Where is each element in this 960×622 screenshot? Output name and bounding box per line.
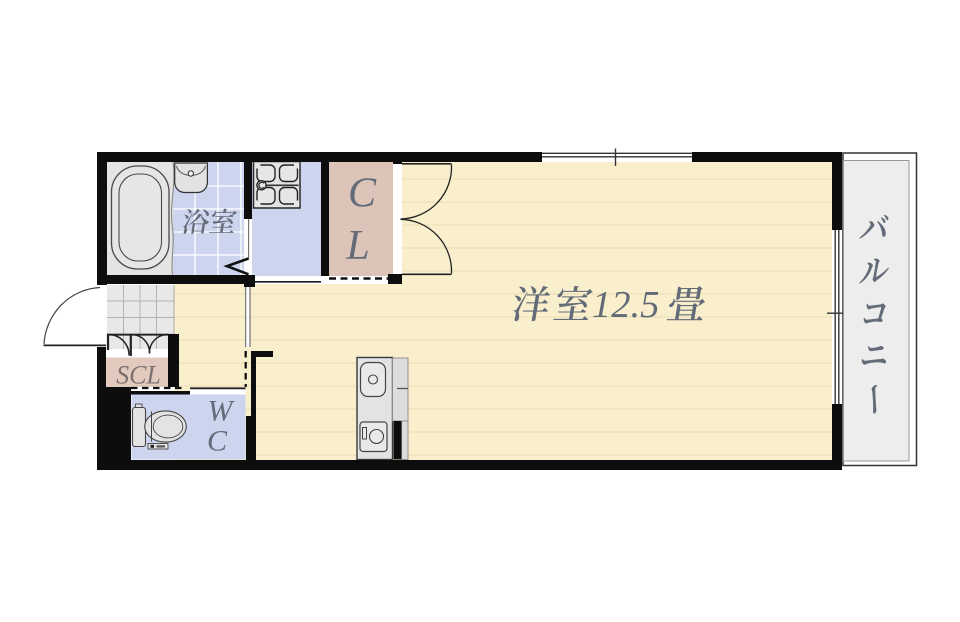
svg-text:W: W [208, 395, 236, 428]
svg-text:12.5: 12.5 [592, 284, 659, 326]
svg-text:C: C [207, 425, 228, 458]
svg-text:L: L [345, 223, 369, 269]
svg-text:C: C [348, 171, 377, 217]
svg-text:SCL: SCL [116, 361, 161, 390]
